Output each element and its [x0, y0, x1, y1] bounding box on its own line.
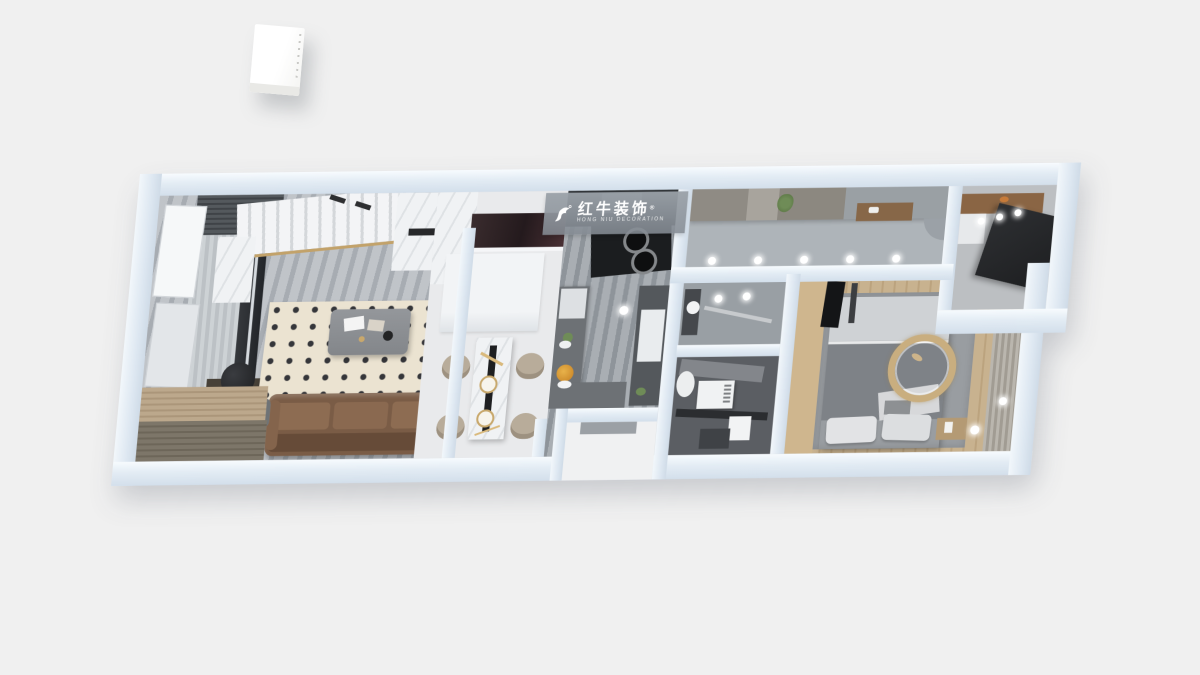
- book-stack: [344, 316, 365, 332]
- place-setting-gold: [479, 375, 499, 393]
- brand-name-cn: 红牛装饰®: [577, 202, 666, 218]
- book-stack-2: [367, 319, 385, 331]
- glass-partition: [704, 306, 772, 324]
- washer-vents: [723, 385, 732, 405]
- accent-cushion: [884, 400, 911, 414]
- toilet: [675, 371, 695, 397]
- picture-frame: [944, 422, 953, 433]
- bathroom-vanity-room: [678, 282, 786, 345]
- downlight-icon: [742, 292, 751, 300]
- downlight-icon: [846, 255, 855, 263]
- downlight-icon: [708, 257, 717, 265]
- brand-name-en: HONG NIU DECORATION: [576, 217, 665, 225]
- pillow: [825, 416, 877, 444]
- dining-table: [467, 337, 513, 439]
- entry-door-mat: [580, 422, 637, 435]
- downlight-icon: [714, 295, 723, 303]
- staircase: [237, 192, 414, 259]
- bull-swoosh-svg: [551, 204, 573, 224]
- panel-binding-dots: [296, 34, 302, 78]
- downlight-icon: [754, 256, 763, 264]
- downlight-icon: [800, 256, 809, 264]
- island-sink-block: [559, 288, 588, 318]
- place-setting-gold-2: [475, 409, 495, 427]
- stove-burner-icon-2: [631, 247, 657, 275]
- pillow-2: [881, 414, 932, 441]
- brand-watermark: 红牛装饰® HONG NIU DECORATION: [542, 191, 688, 235]
- washing-machine: [696, 380, 735, 408]
- wood-console: [856, 203, 914, 222]
- balcony-deck-dark: [135, 420, 267, 462]
- table-decor-gold: [358, 336, 365, 342]
- dark-shelf: [675, 409, 768, 421]
- dining-chair-3: [515, 353, 545, 379]
- sofa-seat-cushion-2: [332, 402, 389, 430]
- hallway: [685, 186, 949, 271]
- entry-sill-wall: [565, 407, 658, 422]
- panel-bottom-edge: [249, 83, 300, 96]
- cabinet-light-strip: [469, 247, 563, 252]
- bathroom-laundry: [668, 356, 779, 455]
- floorplan-render-canvas: 红牛装饰® HONG NIU DECORATION: [0, 0, 1200, 675]
- bathroom-divider-wall: [676, 344, 780, 357]
- table-decor-dark: [383, 331, 394, 341]
- stair-newel-marble: [212, 237, 256, 303]
- refrigerator: [637, 309, 666, 361]
- downlight-icon: [619, 306, 629, 315]
- downlight-icon: [892, 255, 901, 263]
- coffee-table: [327, 309, 411, 356]
- curved-wall-corner: [922, 218, 946, 240]
- shower-floor-mat: [699, 428, 731, 448]
- apartment-floorplan: 红牛装饰® HONG NIU DECORATION: [111, 163, 1081, 486]
- console-decor: [868, 207, 879, 213]
- balcony-deck-light: [139, 386, 268, 422]
- sofa-seat-cushion: [274, 402, 331, 430]
- study-bottom-wall: [935, 309, 1067, 335]
- floating-wall-panel: [249, 24, 305, 96]
- shower-control-box: [727, 416, 751, 440]
- registered-mark: ®: [650, 206, 658, 212]
- hongniu-bull-logo-icon: [551, 204, 573, 224]
- downlight-icon: [970, 425, 980, 434]
